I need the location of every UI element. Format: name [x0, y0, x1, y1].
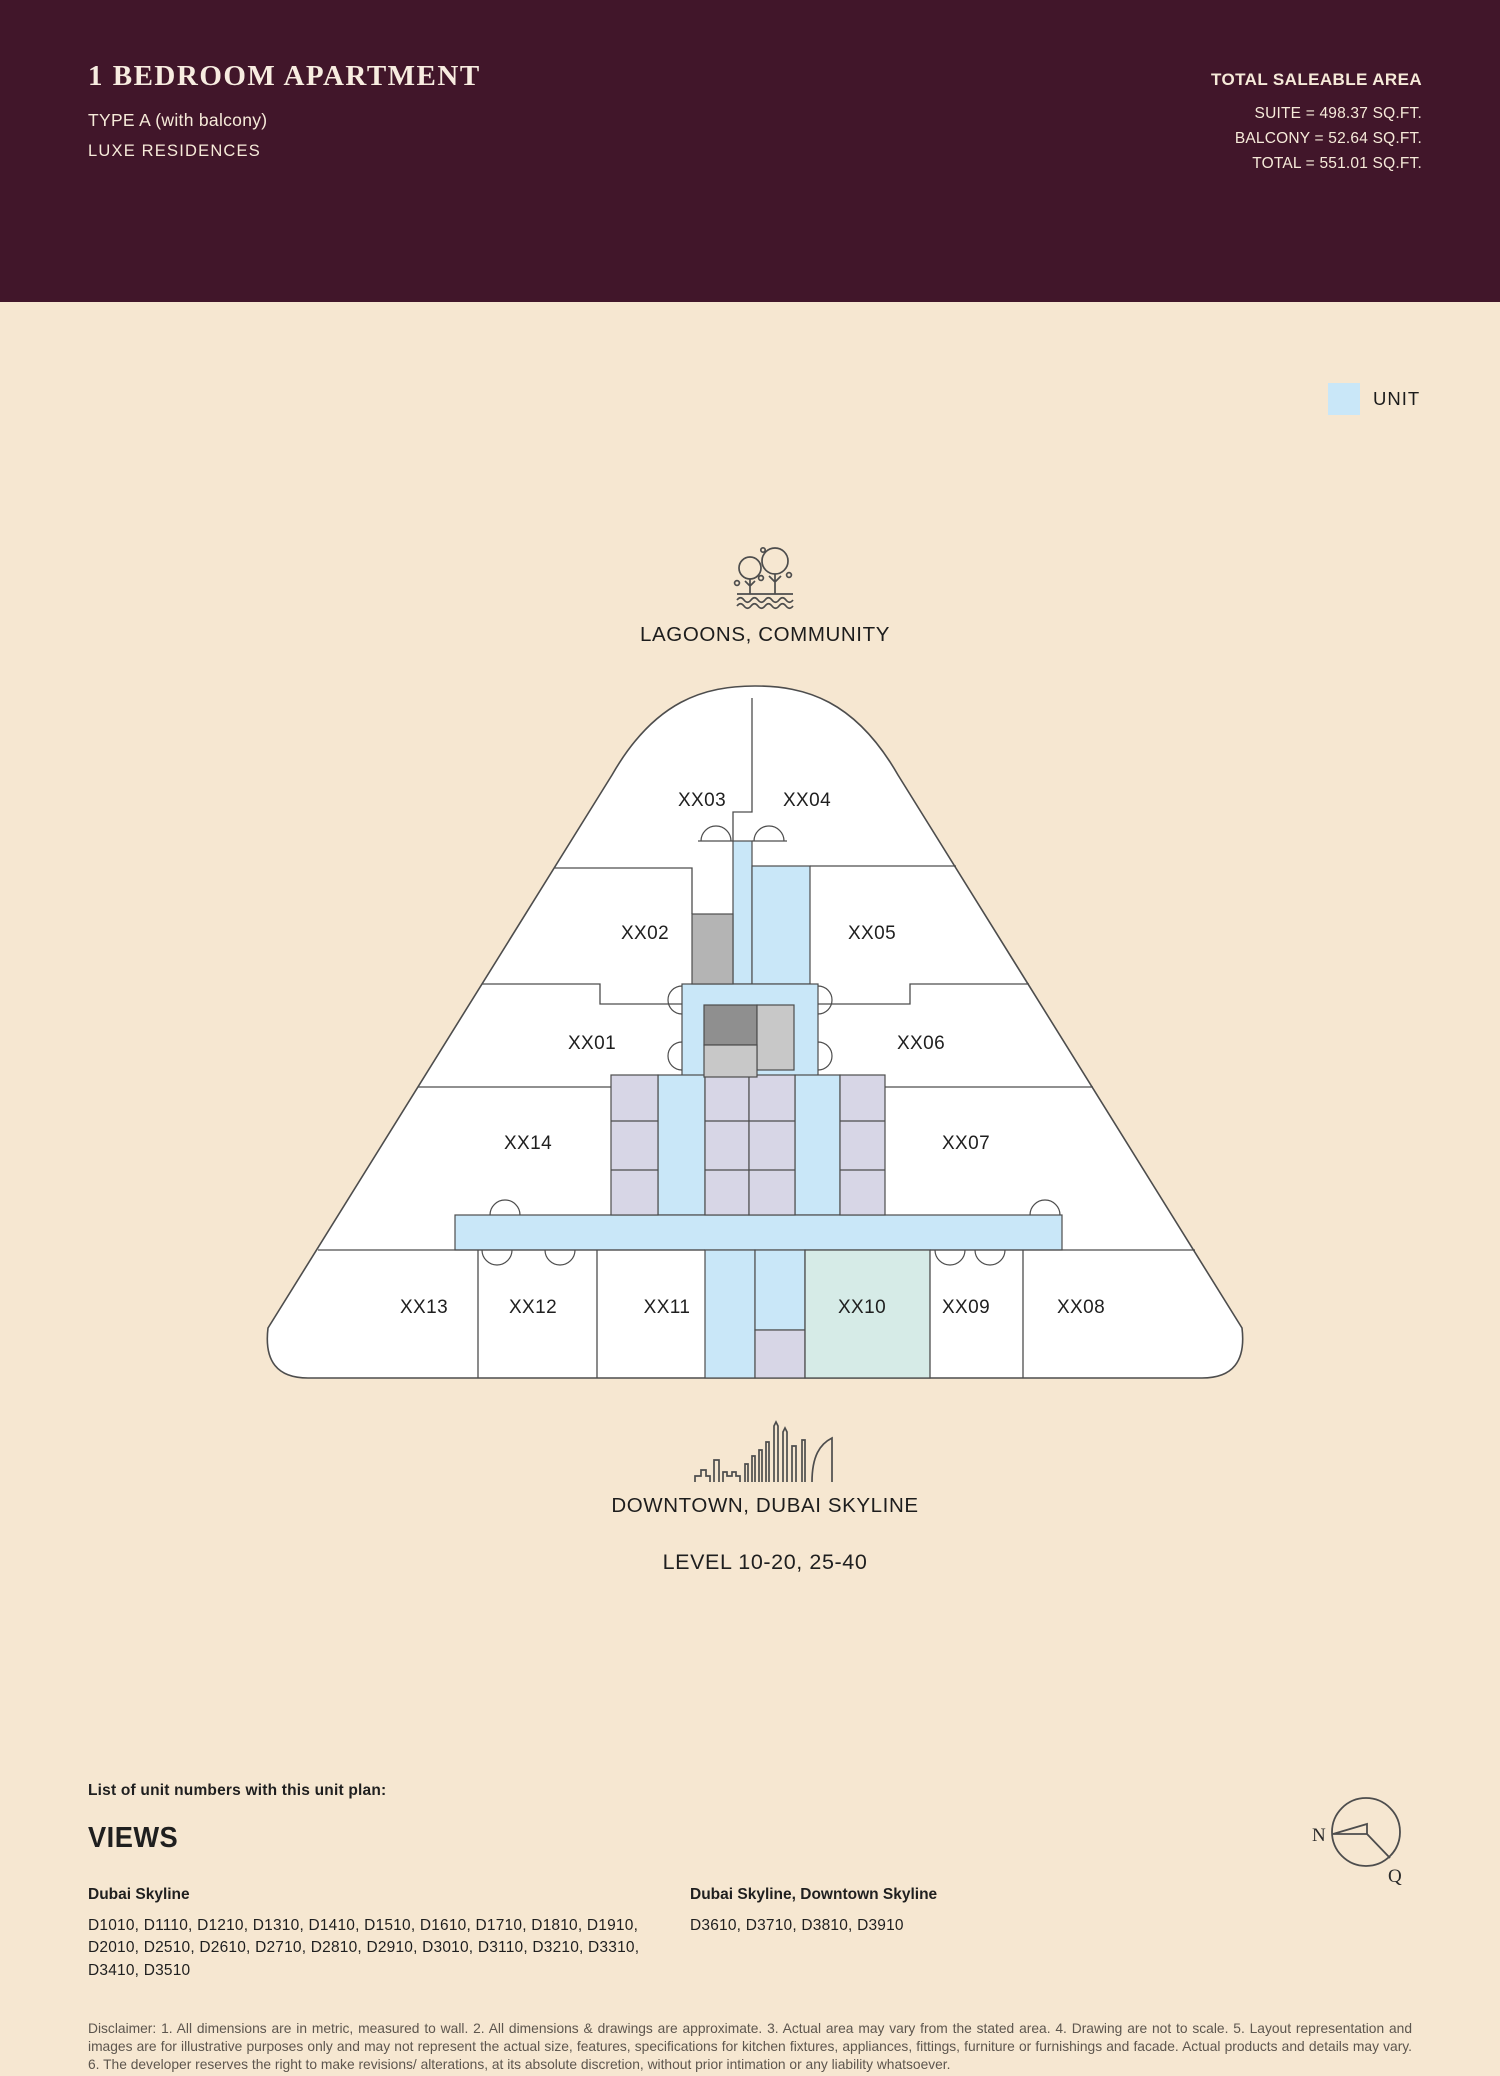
unit-label-xx02: XX02 — [621, 923, 669, 945]
skyline-view-label: DOWNTOWN, DUBAI SKYLINE — [611, 1494, 918, 1518]
compass-icon: N Q — [1300, 1786, 1430, 1911]
total-area-value: TOTAL = 551.01 SQ.FT. — [1211, 151, 1422, 176]
view-column-dubai-skyline: Dubai Skyline D1010, D1110, D1210, D1310… — [88, 1886, 648, 1982]
unit-label-xx09: XX09 — [942, 1297, 990, 1319]
floor-plan — [260, 670, 1260, 1390]
view-column-title: Dubai Skyline — [88, 1886, 648, 1904]
unit-label-xx13: XX13 — [400, 1297, 448, 1319]
view-column-units: D3610, D3710, D3810, D3910 — [690, 1915, 1120, 1937]
unit-label-xx01: XX01 — [568, 1033, 616, 1055]
header-bar: 1 BEDROOM APARTMENT TYPE A (with balcony… — [0, 0, 1500, 302]
lagoons-view-label: LAGOONS, COMMUNITY — [640, 623, 890, 647]
view-column-title: Dubai Skyline, Downtown Skyline — [690, 1886, 1120, 1904]
unit-list-heading: List of unit numbers with this unit plan… — [88, 1782, 386, 1800]
unit-label-xx11: XX11 — [644, 1297, 691, 1319]
unit-legend-label: UNIT — [1373, 388, 1420, 410]
saleable-area-block: TOTAL SALEABLE AREA SUITE = 498.37 SQ.FT… — [1211, 70, 1422, 176]
page-title: 1 BEDROOM APARTMENT — [88, 60, 481, 93]
header-title-block: 1 BEDROOM APARTMENT TYPE A (with balcony… — [88, 60, 481, 161]
unit-label-xx08: XX08 — [1057, 1297, 1105, 1319]
brochure-page: 1 BEDROOM APARTMENT TYPE A (with balcony… — [0, 0, 1500, 2076]
unit-label-xx06: XX06 — [897, 1033, 945, 1055]
brand-label: LUXE RESIDENCES — [88, 142, 481, 161]
disclaimer-text: Disclaimer: 1. All dimensions are in met… — [88, 2020, 1412, 2074]
compass-q-label: Q — [1388, 1866, 1402, 1887]
unit-legend: UNIT — [1328, 383, 1420, 415]
suite-area-value: SUITE = 498.37 SQ.FT. — [1211, 101, 1422, 126]
level-label: LEVEL 10-20, 25-40 — [663, 1550, 868, 1575]
unit-label-xx07: XX07 — [942, 1133, 990, 1155]
views-heading: VIEWS — [88, 1822, 178, 1855]
compass-north-label: N — [1312, 1825, 1326, 1846]
unit-label-xx03: XX03 — [678, 790, 726, 812]
unit-type-label: TYPE A (with balcony) — [88, 110, 481, 131]
lagoons-icon — [725, 545, 805, 616]
skyline-icon — [690, 1412, 840, 1493]
unit-swatch — [1328, 383, 1360, 415]
unit-label-xx12: XX12 — [509, 1297, 557, 1319]
unit-label-xx04: XX04 — [783, 790, 831, 812]
unit-label-xx14: XX14 — [504, 1133, 552, 1155]
unit-label-xx05: XX05 — [848, 923, 896, 945]
view-column-dubai-downtown-skyline: Dubai Skyline, Downtown Skyline D3610, D… — [690, 1886, 1120, 1937]
saleable-area-heading: TOTAL SALEABLE AREA — [1211, 70, 1422, 90]
view-column-units: D1010, D1110, D1210, D1310, D1410, D1510… — [88, 1915, 648, 1982]
balcony-area-value: BALCONY = 52.64 SQ.FT. — [1211, 126, 1422, 151]
unit-label-xx10: XX10 — [838, 1297, 886, 1319]
